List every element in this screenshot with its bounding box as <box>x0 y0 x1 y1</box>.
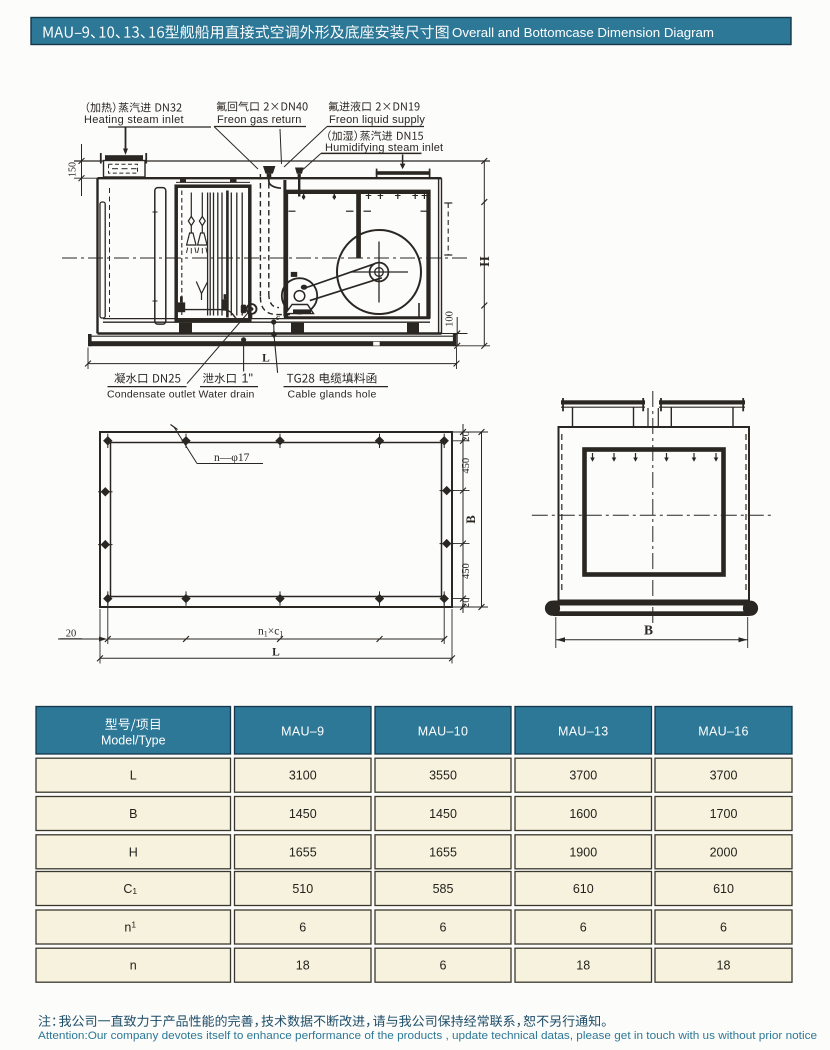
svg-text:18: 18 <box>296 959 310 973</box>
svg-text:Humidifying steam inlet: Humidifying steam inlet <box>325 142 443 154</box>
svg-text:B: B <box>464 515 478 523</box>
svg-text:1900: 1900 <box>569 845 597 859</box>
svg-text:Heating steam inlet: Heating steam inlet <box>84 114 184 126</box>
svg-text:Condensate outlet: Condensate outlet <box>107 388 196 400</box>
svg-text:18: 18 <box>576 959 590 973</box>
svg-text:3550: 3550 <box>429 769 457 783</box>
svg-text:1450: 1450 <box>289 807 317 821</box>
svg-text:1600: 1600 <box>569 807 597 821</box>
svg-text:6: 6 <box>720 921 727 935</box>
svg-text:585: 585 <box>433 882 454 896</box>
svg-text:20: 20 <box>461 431 472 442</box>
svg-text:1655: 1655 <box>429 845 457 859</box>
svg-text:6: 6 <box>440 921 447 935</box>
svg-text:3700: 3700 <box>569 769 597 783</box>
svg-text:6: 6 <box>440 959 447 973</box>
svg-text:1700: 1700 <box>710 807 738 821</box>
svg-text:n: n <box>130 959 137 973</box>
svg-text:610: 610 <box>573 882 594 896</box>
svg-text:6: 6 <box>299 921 306 935</box>
svg-text:100: 100 <box>445 311 456 327</box>
svg-text:MAU–13: MAU–13 <box>558 725 608 739</box>
svg-text:450: 450 <box>461 458 472 474</box>
svg-text:Model/Type: Model/Type <box>101 734 166 748</box>
svg-text:510: 510 <box>292 882 313 896</box>
svg-text:L: L <box>262 353 270 365</box>
svg-text:Freon gas return: Freon gas return <box>217 114 302 126</box>
svg-text:n—φ17: n—φ17 <box>214 452 250 464</box>
svg-text:610: 610 <box>713 882 734 896</box>
svg-text:3700: 3700 <box>710 769 738 783</box>
svg-text:MAU–16: MAU–16 <box>698 725 748 739</box>
svg-text:c: c <box>276 312 280 322</box>
svg-text:H: H <box>129 845 138 859</box>
svg-text:L: L <box>130 769 137 783</box>
svg-text:Freon liquid supply: Freon liquid supply <box>329 114 425 126</box>
svg-text:1": 1" <box>242 372 253 386</box>
svg-text:450: 450 <box>461 563 472 579</box>
svg-text:18: 18 <box>717 959 731 973</box>
svg-text:Overall and Bottomcase Dimensi: Overall and Bottomcase Dimension Diagram <box>452 25 714 40</box>
svg-text:L: L <box>272 647 280 659</box>
svg-text:Water drain: Water drain <box>199 388 255 400</box>
svg-text:H: H <box>477 256 492 267</box>
svg-text:Attention:Our company devotes: Attention:Our company devotes itself to … <box>38 1030 817 1042</box>
svg-text:Cable glands hole: Cable glands hole <box>288 388 377 400</box>
svg-text:20: 20 <box>461 598 472 609</box>
svg-text:1655: 1655 <box>289 845 317 859</box>
svg-text:20: 20 <box>66 629 77 640</box>
svg-text:3100: 3100 <box>289 769 317 783</box>
svg-text:6: 6 <box>580 921 587 935</box>
svg-text:MAU–10: MAU–10 <box>418 725 468 739</box>
svg-text:B: B <box>129 807 137 821</box>
svg-text:2000: 2000 <box>710 845 738 859</box>
svg-text:150: 150 <box>68 162 79 177</box>
svg-text:B: B <box>644 623 653 638</box>
svg-text:MAU–9: MAU–9 <box>281 725 324 739</box>
svg-text:1450: 1450 <box>429 807 457 821</box>
